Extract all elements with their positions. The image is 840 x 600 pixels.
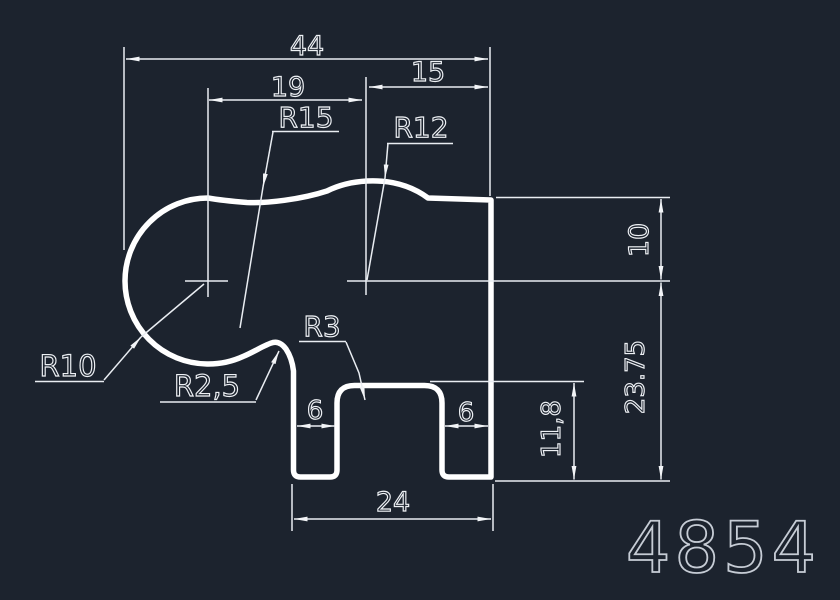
leader-r12-tail: [367, 178, 385, 280]
label-r15: R15: [278, 101, 333, 134]
label-right-height: 23.75: [621, 340, 651, 414]
leader-r12: [385, 143, 388, 178]
label-r10: R10: [39, 349, 96, 383]
label-leg-right: 6: [458, 398, 475, 428]
dimension-labels: 44 19 15 R15 R12 R10 R2,5 R3 6 6 24 10 2…: [39, 31, 655, 518]
label-total-width: 44: [290, 31, 324, 62]
leader-r3: [346, 342, 365, 400]
label-r3: R3: [303, 310, 340, 343]
leader-r15: [263, 132, 273, 187]
label-bottom-width: 24: [376, 487, 410, 518]
label-left-width: 19: [271, 72, 305, 103]
drawing-canvas: 44 19 15 R15 R12 R10 R2,5 R3 6 6 24 10 2…: [0, 0, 840, 600]
leader-r15-tail: [240, 187, 263, 328]
part-number-text: 4854: [626, 507, 820, 589]
label-right-width: 15: [411, 57, 445, 88]
leader-r10-tail: [141, 284, 204, 337]
leader-r2-5: [256, 351, 279, 400]
label-r2-5: R2,5: [174, 369, 240, 403]
label-top-height: 10: [624, 223, 655, 257]
label-r12: R12: [393, 111, 448, 144]
label-notch-height: 11,8: [537, 400, 567, 458]
label-leg-left: 6: [307, 396, 324, 426]
leader-r10: [104, 337, 141, 380]
radius-leaders: [35, 132, 453, 403]
cad-viewport: 44 19 15 R15 R12 R10 R2,5 R3 6 6 24 10 2…: [0, 0, 840, 600]
